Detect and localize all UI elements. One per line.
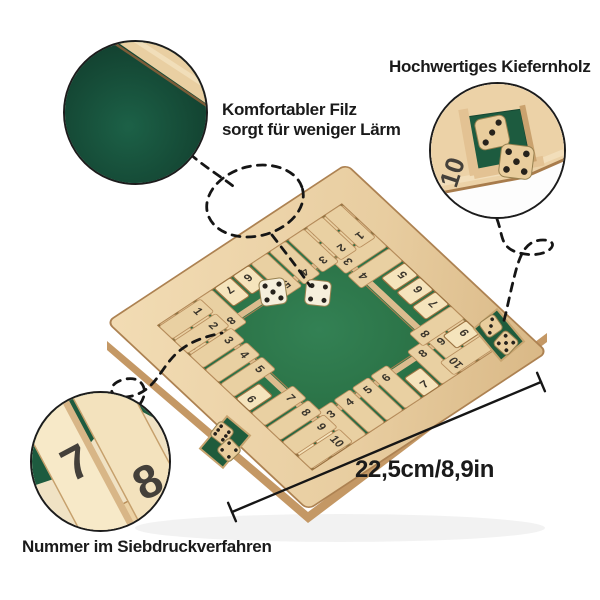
die-center-left: [258, 277, 287, 306]
connector-felt-callout: [190, 154, 233, 186]
dimension-label: 22,5cm/8,9in: [355, 460, 494, 480]
felt-label: Komfortabler Filz sorgt für weniger Lärm: [222, 100, 401, 140]
silkscreen-label: Nummer im Siebdruckverfahren: [22, 537, 272, 557]
material-label: Hochwertiges Kiefernholz: [389, 57, 591, 77]
connector-dice-callout: [497, 219, 552, 324]
printed-tiles-callout: 7 8: [30, 391, 171, 532]
felt-closeup-callout: [63, 40, 208, 185]
die-callout-2: [498, 143, 535, 180]
dice-corner-callout: 10: [429, 82, 566, 219]
product-image: 1234567891010987654321123456789101234567…: [0, 0, 600, 600]
